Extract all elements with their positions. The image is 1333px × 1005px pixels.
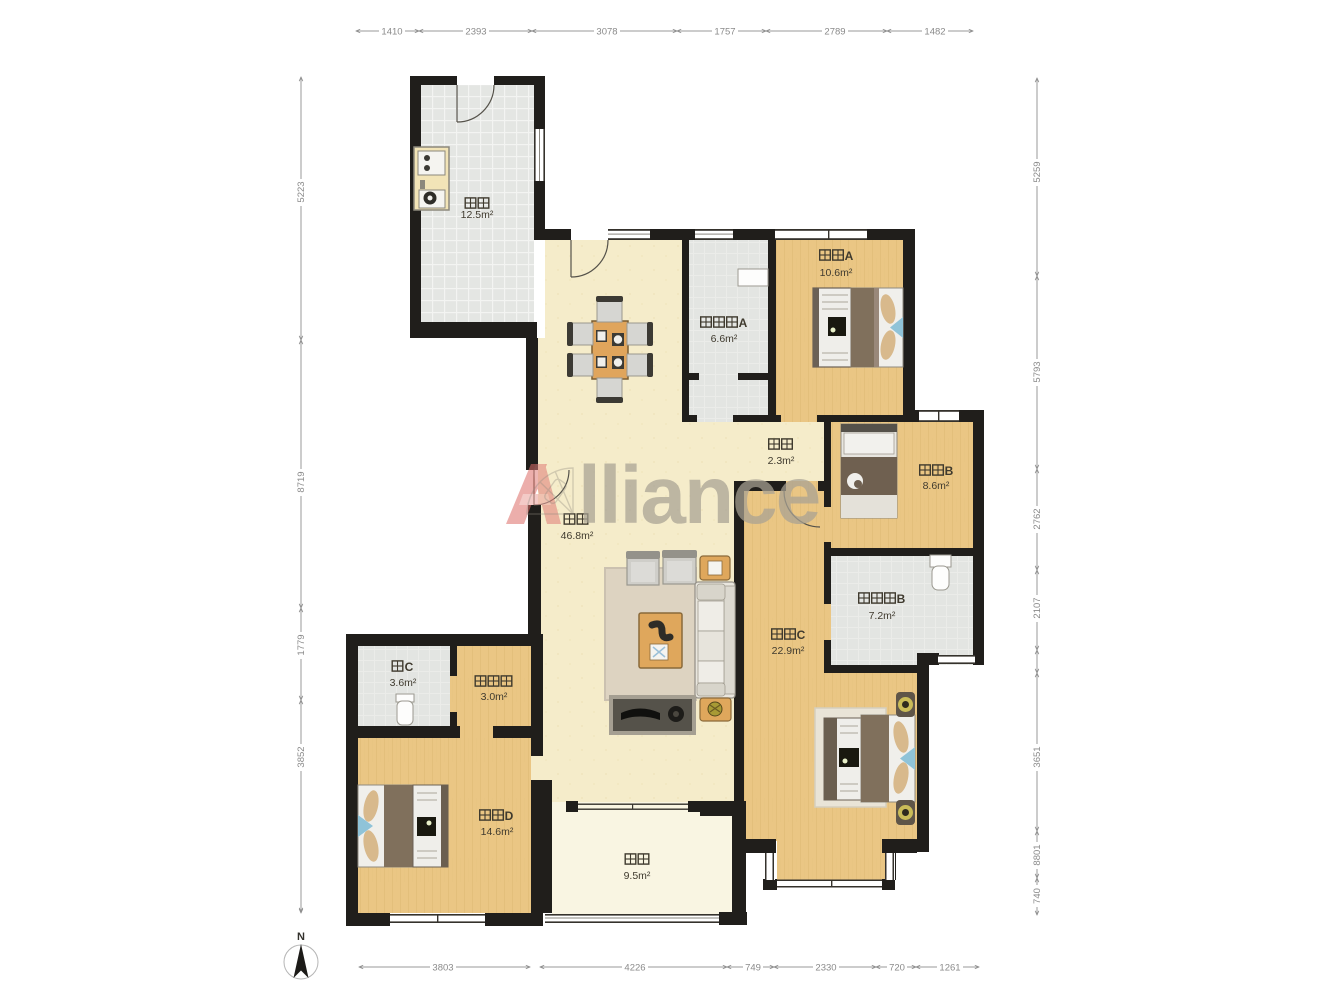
svg-text:2393: 2393	[465, 27, 486, 38]
svg-text:A: A	[739, 316, 748, 330]
svg-text:22.9m²: 22.9m²	[772, 645, 805, 657]
svg-text:9.5m²: 9.5m²	[624, 870, 651, 882]
svg-text:1261: 1261	[939, 963, 960, 974]
svg-text:1757: 1757	[714, 27, 735, 38]
svg-text:8719: 8719	[296, 471, 307, 492]
svg-text:lliance: lliance	[578, 450, 819, 541]
svg-text:720: 720	[889, 963, 905, 974]
svg-text:D: D	[505, 809, 514, 823]
svg-text:6.6m²: 6.6m²	[711, 333, 738, 345]
svg-text:3803: 3803	[432, 963, 453, 974]
svg-text:5259: 5259	[1032, 161, 1043, 182]
svg-text:B: B	[897, 592, 906, 606]
svg-text:C: C	[405, 660, 414, 674]
svg-text:5223: 5223	[296, 181, 307, 202]
svg-text:740: 740	[1032, 888, 1043, 904]
svg-text:2330: 2330	[815, 963, 836, 974]
svg-text:10.6m²: 10.6m²	[820, 267, 853, 279]
svg-text:749: 749	[745, 963, 761, 974]
svg-text:12.5m²: 12.5m²	[461, 209, 494, 221]
svg-text:2762: 2762	[1032, 508, 1043, 529]
svg-text:7.2m²: 7.2m²	[869, 610, 896, 622]
svg-text:3078: 3078	[596, 27, 617, 38]
svg-text:3.0m²: 3.0m²	[481, 691, 508, 703]
svg-text:3852: 3852	[296, 746, 307, 767]
svg-text:3.6m²: 3.6m²	[390, 677, 417, 689]
svg-text:B: B	[945, 464, 954, 478]
svg-text:5793: 5793	[1032, 361, 1043, 382]
svg-text:A: A	[845, 249, 854, 263]
svg-text:8.6m²: 8.6m²	[923, 480, 950, 492]
svg-text:8801: 8801	[1032, 844, 1043, 865]
svg-text:4226: 4226	[624, 963, 645, 974]
svg-text:1410: 1410	[381, 27, 402, 38]
svg-text:3651: 3651	[1032, 746, 1043, 767]
svg-text:1779: 1779	[296, 634, 307, 655]
svg-text:2107: 2107	[1032, 597, 1043, 618]
svg-text:14.6m²: 14.6m²	[481, 826, 514, 838]
svg-text:1482: 1482	[924, 27, 945, 38]
svg-text:2789: 2789	[824, 27, 845, 38]
svg-text:N: N	[297, 931, 305, 943]
svg-text:C: C	[797, 628, 806, 642]
